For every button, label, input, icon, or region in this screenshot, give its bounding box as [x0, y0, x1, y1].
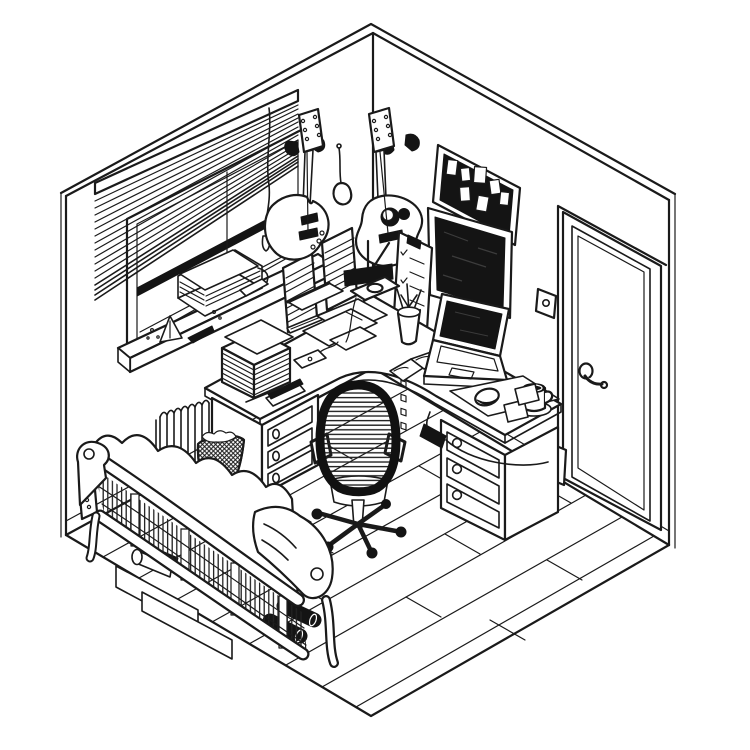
chair-mesh-back — [320, 385, 396, 492]
hanging-capo — [334, 144, 352, 204]
guitar-body — [265, 195, 329, 260]
isometric-room-drawing: Hand-drawn isometric ink illustration of… — [0, 0, 750, 750]
desk-pedestal-right — [441, 420, 558, 540]
wall-top-inner-edge — [66, 33, 669, 200]
guitar-headstock — [299, 109, 323, 152]
wall-hook-right-2 — [405, 134, 419, 151]
pedestal-right-side — [505, 427, 558, 540]
crumpled-paper — [202, 431, 236, 442]
light-switch — [536, 289, 556, 318]
illustration-canvas: Hand-drawn isometric ink illustration of… — [0, 0, 750, 750]
pickguard-dot — [399, 209, 410, 220]
capo-body — [334, 183, 352, 204]
book-stack — [222, 320, 293, 398]
door — [558, 206, 666, 530]
office-chair — [311, 385, 406, 558]
cable-from-desk — [427, 412, 430, 426]
cup-rim — [398, 307, 420, 317]
acoustic-headstock — [369, 108, 394, 152]
laptop — [424, 294, 509, 388]
